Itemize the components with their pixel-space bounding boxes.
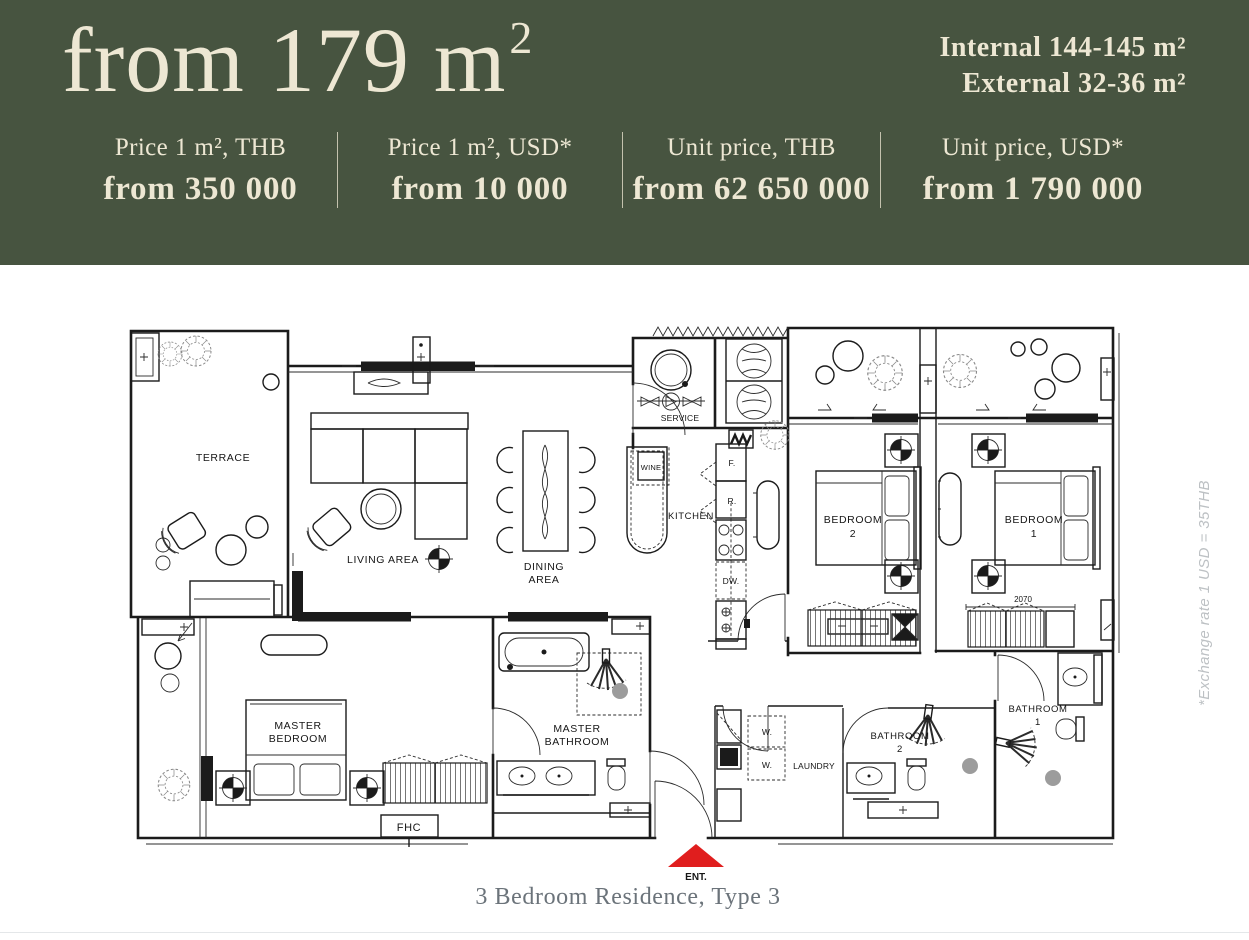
floor-drain-icon — [1045, 770, 1061, 786]
stat-value: from 350 000 — [103, 171, 297, 208]
unit-area-title-text: from 179 m — [62, 9, 506, 111]
floor-plan: TERRACE LIVING AREA DINING AREA SERVICE — [128, 323, 1128, 883]
floor-drain-icon — [612, 683, 628, 699]
stat-price-per-m2-usd: Price 1 m², USD* from 10 000 — [337, 132, 622, 208]
stat-label: Price 1 m², THB — [115, 134, 286, 162]
room-living-area: LIVING AREA — [303, 372, 468, 573]
room-bedroom-2: BEDROOM 2 — [808, 434, 921, 646]
living-area-label: LIVING AREA — [347, 554, 419, 566]
bedroom-2-label-2: 2 — [850, 528, 856, 540]
stat-value: from 10 000 — [392, 171, 569, 208]
bedroom-2-label-1: BEDROOM — [824, 514, 882, 526]
entrance-marker: ENT. — [668, 844, 724, 883]
room-service: SERVICE — [637, 350, 705, 423]
stat-price-per-m2-thb: Price 1 m², THB from 350 000 — [64, 132, 337, 208]
price-stats-row: Price 1 m², THB from 350 000 Price 1 m²,… — [64, 132, 1185, 208]
room-bathroom-2: BATHROOM 2 — [847, 702, 978, 799]
room-bathroom-1: BATHROOM 1 — [992, 653, 1102, 786]
floor-drain-icon — [962, 758, 978, 774]
internal-area-text: Internal 144-145 m² — [939, 30, 1186, 66]
dining-area-label-1: DINING — [524, 561, 564, 573]
dining-area-label-2: AREA — [529, 574, 560, 586]
terrace-label: TERRACE — [196, 452, 250, 464]
freezer-label: R. — [728, 496, 737, 506]
room-master-bedroom: MASTER BEDROOM — [216, 635, 487, 805]
service-label: SERVICE — [661, 413, 700, 423]
fan-icon — [737, 385, 771, 419]
armchair-icon — [157, 510, 208, 557]
kitchen-label: KITCHEN — [668, 511, 714, 522]
stat-unit-price-usd: Unit price, USD* from 1 790 000 — [880, 132, 1185, 208]
stat-label: Price 1 m², USD* — [388, 134, 573, 162]
balcony-bedroom-1 — [944, 339, 1081, 399]
page-bottom-divider — [0, 932, 1249, 933]
stat-value: from 1 790 000 — [923, 171, 1143, 208]
bathroom-1-label-2: 1 — [1035, 717, 1041, 728]
bathroom-1-label-1: BATHROOM — [1009, 704, 1068, 715]
room-dining-area: DINING AREA — [497, 431, 595, 586]
entrance-arrow-icon — [668, 844, 724, 867]
external-area-text: External 32-36 m² — [939, 66, 1186, 102]
wine-cooler-label: WINE — [641, 463, 661, 472]
unit-area-title: from 179 m2 — [62, 10, 533, 111]
balcony-bedroom-2 — [816, 341, 902, 390]
master-bedroom-label-1: MASTER — [274, 720, 321, 732]
equipment-area — [726, 339, 782, 448]
fhc-label: FHC — [397, 822, 421, 834]
stat-label: Unit price, THB — [667, 134, 836, 162]
tree-icon — [944, 355, 977, 388]
bathroom-2-label-2: 2 — [897, 744, 903, 755]
master-bedroom-label-2: BEDROOM — [269, 733, 327, 745]
fhc-box: FHC — [381, 815, 438, 847]
tree-icon — [181, 336, 211, 366]
unit-area-title-sup: 2 — [509, 12, 533, 63]
dishwasher-label: DW. — [723, 576, 740, 586]
bathroom-2-label-1: BATHROOM — [871, 731, 930, 742]
bedroom-1-label-1: BEDROOM — [1005, 514, 1063, 526]
room-laundry: W. W. LAUNDRY — [717, 710, 835, 821]
entrance-label: ENT. — [685, 872, 707, 883]
tree-icon — [158, 769, 190, 801]
washer-label-1: W. — [762, 727, 772, 737]
tree-icon — [868, 356, 903, 391]
fan-icon — [737, 344, 771, 378]
room-terrace: TERRACE — [131, 333, 282, 801]
room-master-bathroom: MASTER BATHROOM — [497, 633, 641, 795]
washer-label-2: W. — [762, 760, 772, 770]
exchange-rate-footnote: *Exchange rate 1 USD = 35THB — [1196, 406, 1213, 706]
master-bathroom-label-1: MASTER — [553, 723, 600, 735]
survey-target-icon — [974, 562, 1002, 590]
survey-target-icon — [219, 774, 247, 802]
dimension-label: 2070 — [1014, 595, 1032, 604]
armchair-icon — [303, 506, 354, 555]
survey-target-icon — [974, 436, 1002, 464]
stat-unit-price-thb: Unit price, THB from 62 650 000 — [622, 132, 880, 208]
survey-target-icon — [887, 436, 915, 464]
room-bedroom-1: 2070 BEDROOM 1 — [938, 434, 1100, 647]
survey-target-icon — [425, 545, 453, 573]
master-bathroom-label-2: BATHROOM — [545, 736, 610, 748]
survey-target-icon — [353, 774, 381, 802]
survey-target-icon — [887, 562, 915, 590]
tree-icon — [761, 421, 790, 450]
stat-label: Unit price, USD* — [942, 134, 1124, 162]
shower-icon — [992, 721, 1040, 768]
bedroom-1-label-2: 1 — [1031, 528, 1037, 540]
area-summary: Internal 144-145 m² External 32-36 m² — [939, 30, 1186, 102]
laundry-label: LAUNDRY — [793, 761, 835, 771]
tree-icon — [158, 342, 182, 366]
stat-value: from 62 650 000 — [633, 171, 871, 208]
fridge-label: F. — [728, 458, 735, 468]
room-kitchen: WINE KITCHEN F. R. DW. — [627, 421, 789, 649]
plan-caption: 3 Bedroom Residence, Type 3 — [128, 884, 1128, 911]
header-panel: from 179 m2 Internal 144-145 m² External… — [0, 0, 1249, 265]
